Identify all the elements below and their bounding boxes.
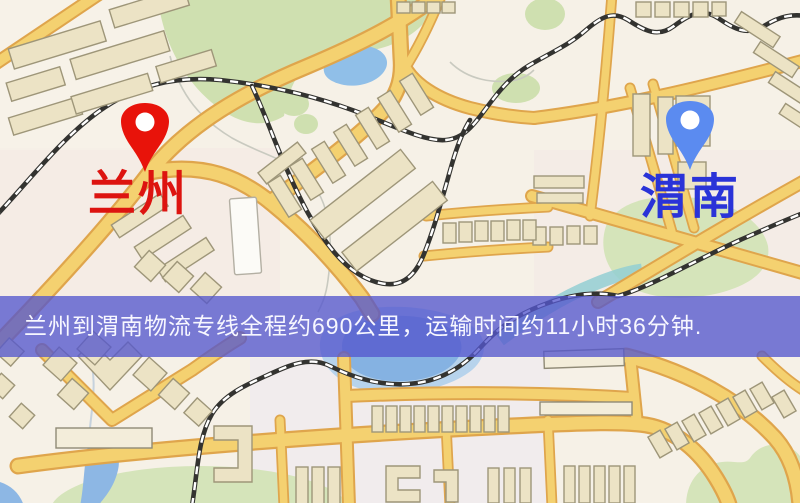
map-artwork: [0, 0, 800, 503]
map-canvas[interactable]: 兰州 渭南 兰州到渭南物流专线全程约690公里，运输时间约11小时36分钟.: [0, 0, 800, 503]
route-info-banner: 兰州到渭南物流专线全程约690公里，运输时间约11小时36分钟.: [0, 296, 800, 357]
origin-label: 兰州: [88, 171, 188, 219]
destination-label: 渭南: [640, 174, 740, 222]
origin-pin-icon[interactable]: [121, 103, 169, 173]
destination-pin-icon[interactable]: [666, 101, 714, 171]
route-info-text: 兰州到渭南物流专线全程约690公里，运输时间约11小时36分钟.: [24, 307, 702, 341]
